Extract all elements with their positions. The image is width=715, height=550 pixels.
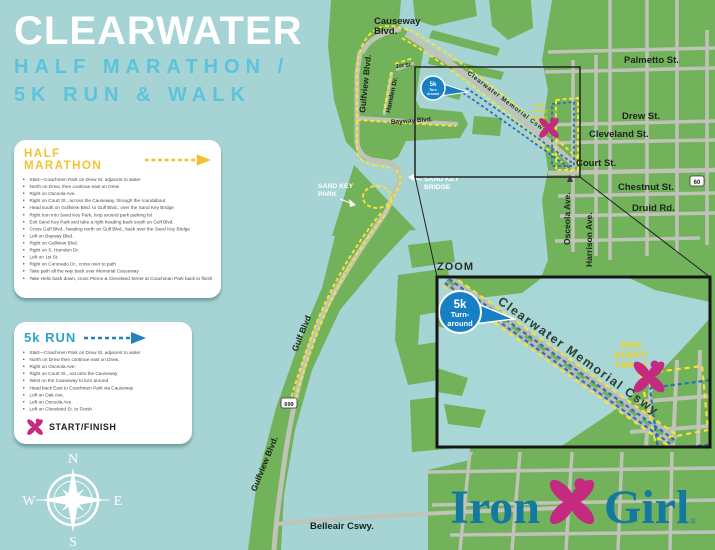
half-marathon-heading-row: HALF MARATHON (24, 148, 211, 172)
direction-step: Left on Osceola Ave. (30, 398, 188, 405)
inset-callout-text: around (447, 319, 473, 328)
street-label-cleveland: Cleveland St. (589, 129, 649, 140)
small-key (472, 116, 502, 136)
direction-step: Right on Court St., across the Causeway,… (30, 197, 217, 204)
street-label-chestnut: Chestnut St. (618, 182, 674, 193)
direction-step: Start—Coachmen Park on Drew St. adjacent… (30, 349, 188, 356)
street-label-drew: Drew St. (622, 111, 660, 122)
poster-title: CLEARWATER (14, 10, 334, 52)
direction-step: Left on Cleveland St. to Finish (30, 405, 188, 412)
street-label-druid: Druid Rd. (632, 203, 675, 214)
race-course-poster: 699 60 Causeway Blvd. Gulfview Blvd. 1st… (0, 0, 715, 550)
five-k-heading-row: 5k RUN (24, 330, 182, 345)
direction-step: Head south on Gulfview Blvd. to Gulf Blv… (30, 204, 217, 211)
direction-step: Left on Bayway Blvd. (30, 232, 217, 239)
run-start-finish-label: RUN (534, 103, 545, 109)
direction-step: Left on 1st St. (30, 254, 217, 261)
start-finish-legend-label: START/FINISH (49, 422, 116, 432)
street-label-belleair: Belleair Cswy. (310, 521, 374, 532)
compass-east-label: E (114, 494, 123, 509)
direction-step: Right turn into Sand Key Park, loop arou… (30, 211, 217, 218)
direction-step: Head back East to Coachmen Park via Caus… (30, 384, 188, 391)
sand-key-park-label: SAND KEY (318, 183, 354, 190)
yellow-dashed-arrow-icon (143, 154, 211, 166)
direction-step: North on Drew, then continue east on Dre… (30, 183, 217, 190)
start-finish-legend: START/FINISH (26, 417, 116, 436)
sand-key-bridge-label: BRIDGE (424, 184, 451, 191)
compass-south-label: S (69, 535, 77, 550)
five-k-steps: Start—Coachmen Park on Drew St. adjacent… (24, 349, 188, 412)
direction-step: Right on Osceola Ave. (30, 363, 188, 370)
inset-map: Clearwater Memorial Cswy 5k Turn- around… (437, 275, 715, 450)
zoom-label: ZOOM (437, 261, 474, 273)
logo-registered-mark: ® (690, 517, 696, 526)
direction-step: Cross Gulf Blvd., heading north on Gulf … (30, 225, 217, 232)
direction-step: Right on Coronado Dr., cross over to pat… (30, 261, 217, 268)
five-k-directions-box: 5k RUN Start—Coachmen Park on Drew St. a… (14, 322, 192, 444)
compass-north-label: N (68, 452, 78, 467)
poster-subtitle: HALF MARATHON / (14, 54, 334, 80)
direction-step: Left on Oak Ave. (30, 391, 188, 398)
compass-west-label: W (22, 494, 36, 509)
street-label-osceola: Osceola Ave. (562, 192, 572, 245)
run-start-finish-label: START/ (531, 109, 549, 115)
start-finish-flower-icon (26, 417, 44, 436)
direction-step: Take Helix back down, cross Pierce & Cle… (30, 275, 217, 282)
sand-key-park-label: PARK (318, 191, 337, 198)
route-699-label: 699 (284, 402, 293, 408)
direction-step: Exit Sand Key Park and take a right head… (30, 218, 217, 225)
street-label-harrison: Harrison Ave. (584, 212, 594, 267)
direction-step: Take path all the way back over Memorial… (30, 268, 217, 275)
direction-step: Right on Osceola Ave. (30, 190, 217, 197)
poster-subtitle: 5K RUN & WALK (14, 82, 334, 108)
blue-dashed-arrow-icon (82, 332, 146, 344)
direction-step: West on the Causeway to turn around (30, 377, 188, 384)
direction-step: Right on Gulfview Blvd. (30, 239, 217, 246)
direction-step: North on Drew then continue east on Drew… (30, 356, 188, 363)
street-label-causeway-blvd: Blvd. (374, 26, 397, 37)
direction-step: Start—Coachmen Park on Drew St. adjacent… (30, 176, 217, 183)
half-marathon-heading: HALF MARATHON (24, 148, 137, 172)
route-60-label: 60 (694, 180, 701, 186)
direction-step: Right on Court St., out onto the Causewa… (30, 370, 188, 377)
poster-title-block: CLEARWATER HALF MARATHON / 5K RUN & WALK (14, 10, 334, 108)
logo-word-girl: Girl (604, 481, 689, 534)
five-k-heading: 5k RUN (24, 330, 76, 345)
half-marathon-steps: Start—Coachmen Park on Drew St. adjacent… (24, 176, 217, 282)
street-label-court: Court St. (576, 158, 616, 169)
half-marathon-directions-box: HALF MARATHON Start—Coachmen Park on Dre… (14, 140, 221, 298)
inset-callout-text: Turn- (451, 310, 470, 319)
logo-word-iron: Iron (450, 481, 540, 534)
street-label-palmetto: Palmetto St. (624, 55, 679, 66)
callout-text: Around (427, 92, 439, 96)
direction-step: Right on S. Hamden Dr. (30, 247, 217, 254)
